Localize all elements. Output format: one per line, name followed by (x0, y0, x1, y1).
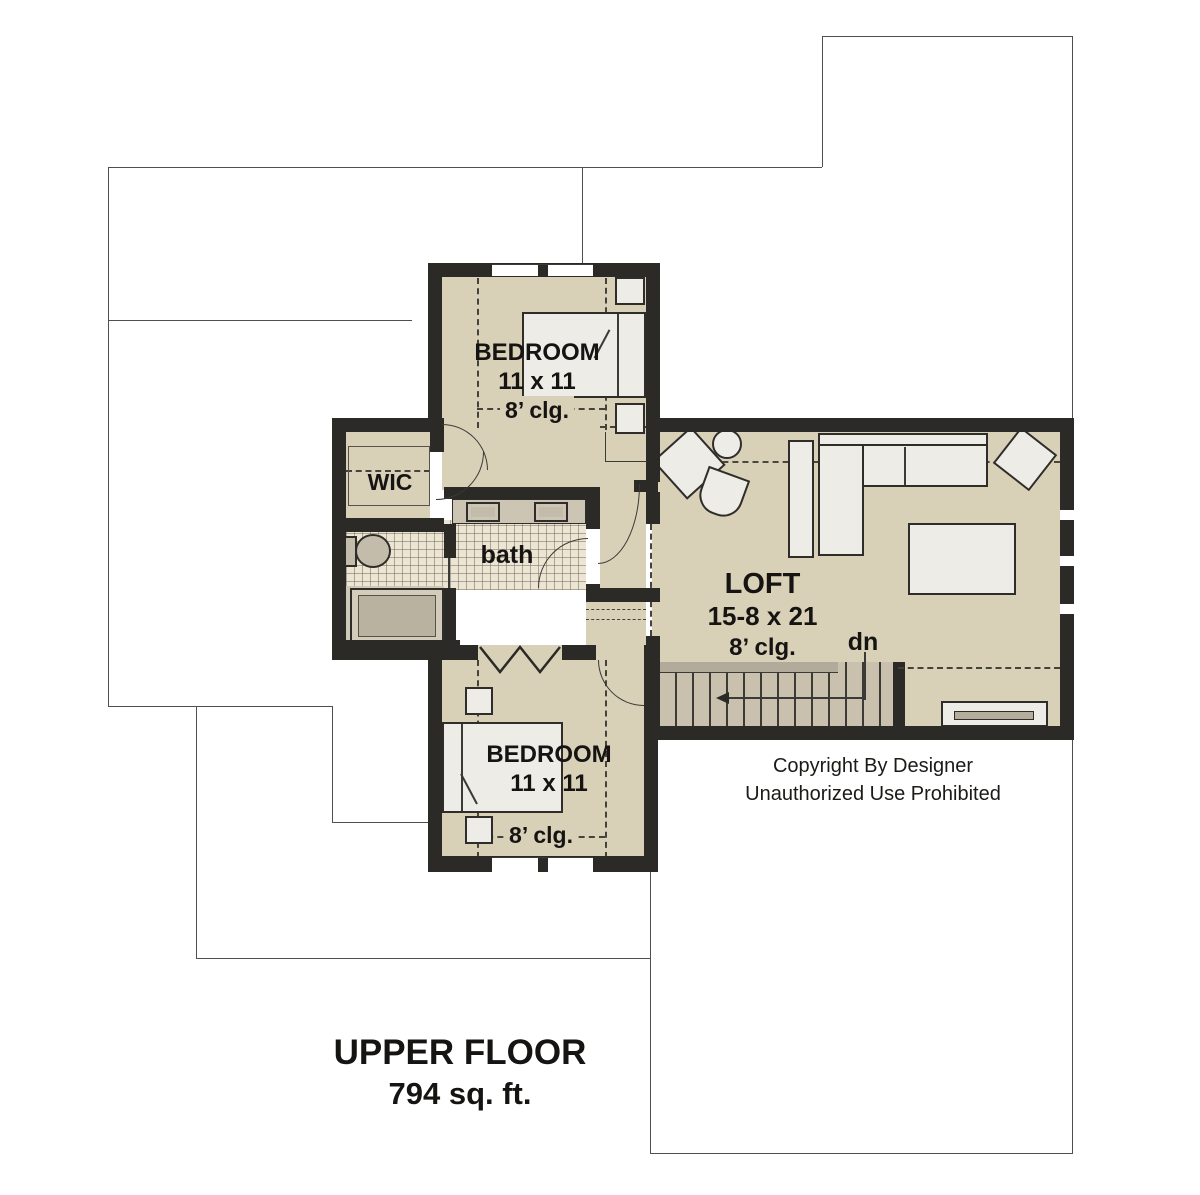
bifold-closet-door (478, 645, 562, 675)
copyright-notice: Copyright By Designer Unauthorized Use P… (723, 752, 1023, 808)
lower-floor-outline-segment (108, 167, 109, 706)
wall-segment (332, 418, 444, 432)
lower-floor-outline-segment (108, 706, 332, 707)
dn-label: dn (838, 628, 888, 657)
wall-segment (586, 588, 660, 602)
loft-opening-dashed (650, 524, 652, 636)
round-side-table (712, 429, 742, 459)
lower-floor-outline-segment (582, 167, 583, 264)
loft-right-wall (1060, 418, 1074, 740)
copyright-line2: Unauthorized Use Prohibited (723, 780, 1023, 808)
stair-direction-arrow (716, 692, 729, 704)
lower-floor-outline-segment (332, 706, 333, 822)
loft-bottom-wall (646, 726, 1074, 740)
room-ceiling: 8’ clg. (685, 632, 840, 664)
lower-floor-outline-segment (822, 36, 1072, 37)
lower-floor-outline-segment (650, 868, 651, 1153)
loft-label: LOFT 15-8 x 21 8’ clg. (685, 568, 840, 664)
dn-leader-vertical (864, 652, 866, 700)
door-leaf-line (605, 432, 606, 462)
plan-area-line: 794 sq. ft. (310, 1073, 610, 1114)
wall-segment (646, 492, 660, 524)
wall-segment (332, 418, 346, 532)
wall-segment (444, 588, 456, 640)
wall-segment (646, 263, 660, 418)
window (492, 858, 538, 872)
plan-title: UPPER FLOOR 794 sq. ft. (310, 1032, 610, 1114)
loft-top-wall (646, 418, 1074, 432)
floor-plan: BEDROOM 11 x 11 8’ clg. WIC bath LOFT 15… (0, 0, 1200, 1195)
hall-closet-floor (586, 600, 646, 646)
lower-floor-outline-segment (196, 706, 197, 958)
sofa-table (788, 440, 814, 558)
wall-segment (444, 524, 456, 558)
sink (534, 502, 568, 522)
window (548, 858, 593, 872)
sectional-sofa-chaise (818, 444, 864, 556)
room-dims: 11 x 11 (437, 367, 637, 396)
dn-leader-horizontal (728, 697, 866, 699)
door-leaf-line (605, 461, 647, 462)
room-name: BEDROOM (449, 740, 649, 769)
lower-floor-outline-segment (108, 320, 412, 321)
room-name: LOFT (685, 568, 840, 600)
nightstand (615, 277, 645, 305)
window-glass-line (492, 264, 593, 265)
door-opening (596, 645, 644, 660)
wall-segment (444, 487, 600, 499)
tub-inner (358, 595, 436, 637)
wic-label: WIC (350, 469, 430, 496)
lower-floor-outline-segment (108, 167, 822, 168)
room-ceiling: 8’ clg. (437, 396, 637, 425)
wall-segment (428, 856, 658, 872)
nightstand (465, 687, 493, 715)
room-dims: 15-8 x 21 (685, 600, 840, 632)
bedroom-bottom-ceiling-label: 8’ clg. (477, 822, 605, 849)
ottoman-coffee-table (908, 523, 1016, 595)
bath-label: bath (457, 541, 557, 570)
closet-shelf-dashed (586, 609, 646, 610)
toilet-bowl (355, 534, 391, 568)
plan-title-line: UPPER FLOOR (310, 1032, 610, 1073)
window (492, 264, 538, 276)
stair-railing-dashed (898, 667, 1060, 669)
media-console-inner (954, 711, 1034, 720)
lower-floor-outline-segment (650, 1153, 1073, 1154)
sofa-cushion-line (904, 447, 906, 485)
wall-segment (428, 263, 660, 277)
stair-wall (893, 662, 905, 726)
bedroom-top-label: BEDROOM 11 x 11 8’ clg. (437, 338, 637, 425)
room-name: BEDROOM (437, 338, 637, 367)
room-dims: 11 x 11 (449, 769, 649, 798)
lower-floor-outline-segment (196, 958, 650, 959)
bedroom-bottom-label: BEDROOM 11 x 11 (449, 740, 649, 798)
pocket-door-line (448, 558, 450, 588)
wall-segment (332, 518, 444, 532)
loft-wall-break (1060, 556, 1074, 566)
loft-wall-break (1060, 510, 1074, 520)
window-glass-line (492, 857, 593, 858)
copyright-line1: Copyright By Designer (723, 752, 1023, 780)
sink (466, 502, 500, 522)
wall-segment (428, 645, 442, 872)
loft-wall-break (1060, 604, 1074, 614)
wall-segment (332, 532, 346, 654)
lower-floor-outline-segment (822, 36, 823, 167)
lower-floor-outline-segment (332, 822, 430, 823)
window (548, 264, 593, 276)
closet-shelf-dashed (586, 619, 646, 620)
